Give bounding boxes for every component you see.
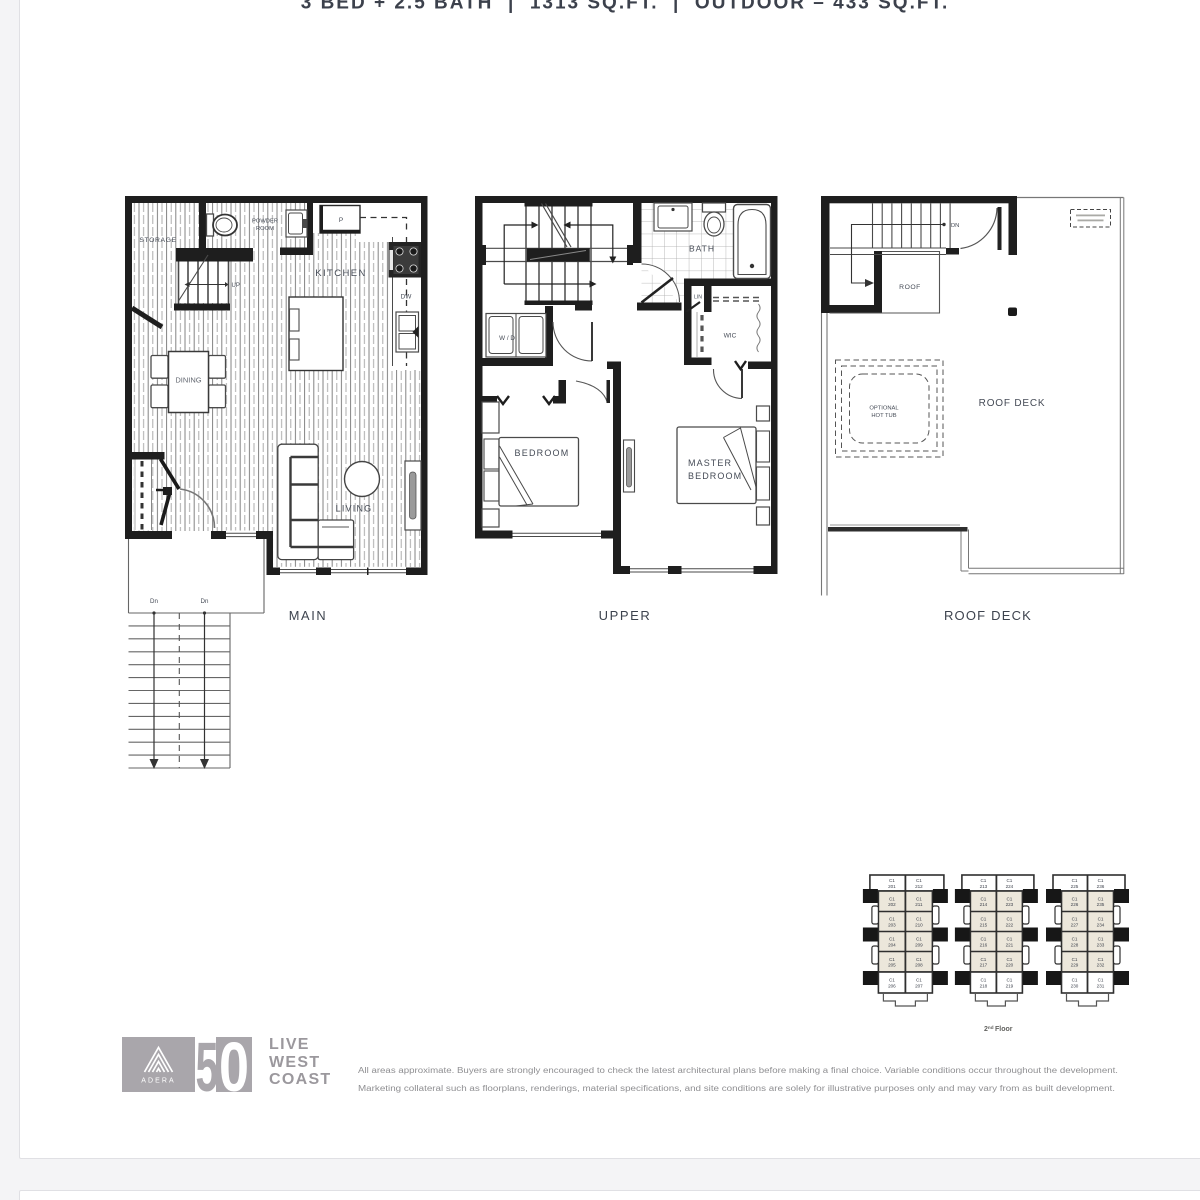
svg-text:Marketing collateral such as f: Marketing collateral such as floorplans,… xyxy=(358,1084,1115,1093)
svg-text:C1: C1 xyxy=(1098,878,1104,883)
svg-text:ROOM: ROOM xyxy=(256,226,274,232)
svg-text:STORAGE: STORAGE xyxy=(139,237,176,244)
svg-text:W / D: W / D xyxy=(499,335,515,342)
svg-text:LIVING: LIVING xyxy=(336,504,373,514)
svg-text:C1: C1 xyxy=(980,957,986,962)
svg-text:C1: C1 xyxy=(916,917,922,922)
svg-text:215: 215 xyxy=(980,922,988,927)
svg-text:220: 220 xyxy=(1006,963,1014,968)
svg-text:C1: C1 xyxy=(1006,937,1012,942)
svg-text:C1: C1 xyxy=(980,878,986,883)
svg-text:208: 208 xyxy=(915,963,923,968)
svg-text:POWDER: POWDER xyxy=(252,219,278,225)
svg-text:207: 207 xyxy=(915,983,923,988)
svg-text:210: 210 xyxy=(915,922,923,927)
svg-text:203: 203 xyxy=(888,922,896,927)
svg-text:C1: C1 xyxy=(1098,978,1104,983)
svg-text:C1: C1 xyxy=(1006,878,1012,883)
svg-text:214: 214 xyxy=(980,902,988,907)
svg-text:C1: C1 xyxy=(1098,897,1104,902)
svg-text:MAIN: MAIN xyxy=(289,608,327,623)
svg-text:Dn: Dn xyxy=(201,598,209,605)
svg-text:C1: C1 xyxy=(1006,917,1012,922)
svg-text:C1: C1 xyxy=(889,917,895,922)
svg-text:C1: C1 xyxy=(1006,978,1012,983)
svg-text:C1: C1 xyxy=(916,957,922,962)
svg-text:C1: C1 xyxy=(1072,917,1078,922)
svg-text:C1: C1 xyxy=(1006,897,1012,902)
svg-text:C1: C1 xyxy=(1098,937,1104,942)
svg-text:LIN: LIN xyxy=(694,295,702,301)
svg-text:227: 227 xyxy=(1071,922,1079,927)
svg-text:C1: C1 xyxy=(1098,957,1104,962)
svg-text:206: 206 xyxy=(888,983,896,988)
svg-text:BEDROOM: BEDROOM xyxy=(515,448,570,458)
svg-text:C1: C1 xyxy=(916,937,922,942)
svg-text:ROOF DECK: ROOF DECK xyxy=(979,398,1046,409)
svg-text:WIC: WIC xyxy=(724,333,737,340)
svg-text:ROOF: ROOF xyxy=(899,284,921,291)
svg-text:211: 211 xyxy=(915,902,923,907)
svg-text:235: 235 xyxy=(1097,902,1105,907)
svg-text:224: 224 xyxy=(1006,884,1014,889)
svg-text:209: 209 xyxy=(915,942,923,947)
svg-text:3 BED + 2.5 BATH | 1313 SQ.F: 3 BED + 2.5 BATH | 1313 SQ.FT. | OUTDOOR… xyxy=(301,0,950,14)
svg-text:All areas approximate. Buyers: All areas approximate. Buyers are strong… xyxy=(358,1066,1118,1075)
svg-text:C1: C1 xyxy=(889,978,895,983)
svg-text:DN: DN xyxy=(951,223,959,229)
svg-text:219: 219 xyxy=(1006,983,1014,988)
svg-text:C1: C1 xyxy=(1072,978,1078,983)
svg-text:OPTIONAL: OPTIONAL xyxy=(869,406,899,412)
svg-text:2ndFloor: 2ndFloor xyxy=(984,1025,1013,1033)
svg-text:C1: C1 xyxy=(1098,917,1104,922)
svg-text:BATH: BATH xyxy=(689,244,715,254)
svg-text:221: 221 xyxy=(1006,942,1014,947)
svg-text:C1: C1 xyxy=(980,897,986,902)
svg-text:C1: C1 xyxy=(916,897,922,902)
svg-text:C1: C1 xyxy=(889,878,895,883)
svg-text:C1: C1 xyxy=(916,978,922,983)
svg-text:DW: DW xyxy=(401,294,413,301)
svg-text:ADERA: ADERA xyxy=(141,1078,176,1085)
svg-text:C1: C1 xyxy=(889,957,895,962)
svg-text:213: 213 xyxy=(980,884,988,889)
svg-text:KITCHEN: KITCHEN xyxy=(315,268,367,279)
svg-text:236: 236 xyxy=(1097,884,1105,889)
svg-text:P: P xyxy=(339,217,343,224)
svg-text:0: 0 xyxy=(219,1037,249,1097)
svg-text:C1: C1 xyxy=(889,897,895,902)
svg-text:218: 218 xyxy=(980,983,988,988)
svg-text:216: 216 xyxy=(980,942,988,947)
svg-text:C1: C1 xyxy=(1072,957,1078,962)
svg-text:C1: C1 xyxy=(1006,957,1012,962)
svg-text:212: 212 xyxy=(915,884,923,889)
svg-text:C1: C1 xyxy=(980,978,986,983)
svg-text:DINING: DINING xyxy=(175,376,201,385)
svg-text:UPPER: UPPER xyxy=(599,608,652,623)
svg-text:C1: C1 xyxy=(1072,897,1078,902)
svg-text:202: 202 xyxy=(888,902,896,907)
svg-text:204: 204 xyxy=(888,942,896,947)
svg-text:225: 225 xyxy=(1071,884,1079,889)
svg-text:C1: C1 xyxy=(980,937,986,942)
svg-text:205: 205 xyxy=(888,963,896,968)
svg-text:5: 5 xyxy=(196,1037,219,1097)
svg-text:217: 217 xyxy=(980,963,988,968)
svg-text:C1: C1 xyxy=(1072,878,1078,883)
svg-text:BEDROOM: BEDROOM xyxy=(688,471,742,481)
svg-text:229: 229 xyxy=(1071,963,1079,968)
svg-text:232: 232 xyxy=(1097,963,1105,968)
svg-text:231: 231 xyxy=(1097,983,1105,988)
svg-text:201: 201 xyxy=(888,884,896,889)
svg-text:234: 234 xyxy=(1097,922,1105,927)
svg-text:C1: C1 xyxy=(889,937,895,942)
svg-text:C1: C1 xyxy=(980,917,986,922)
svg-text:230: 230 xyxy=(1071,983,1079,988)
svg-text:228: 228 xyxy=(1071,942,1079,947)
svg-text:223: 223 xyxy=(1006,902,1014,907)
svg-text:HOT TUB: HOT TUB xyxy=(871,413,896,419)
svg-text:ROOF DECK: ROOF DECK xyxy=(944,608,1032,623)
svg-text:MASTER: MASTER xyxy=(688,458,732,468)
svg-text:C1: C1 xyxy=(1072,937,1078,942)
svg-text:C1: C1 xyxy=(916,878,922,883)
svg-text:222: 222 xyxy=(1006,922,1014,927)
svg-text:233: 233 xyxy=(1097,942,1105,947)
svg-text:226: 226 xyxy=(1071,902,1079,907)
svg-text:UP: UP xyxy=(232,283,240,289)
svg-text:Dn: Dn xyxy=(150,598,158,605)
